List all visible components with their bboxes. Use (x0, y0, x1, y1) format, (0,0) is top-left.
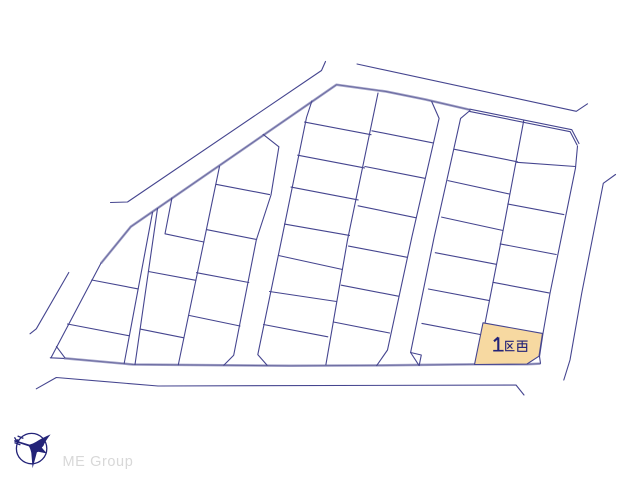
svg-text:ME Group: ME Group (63, 454, 134, 470)
